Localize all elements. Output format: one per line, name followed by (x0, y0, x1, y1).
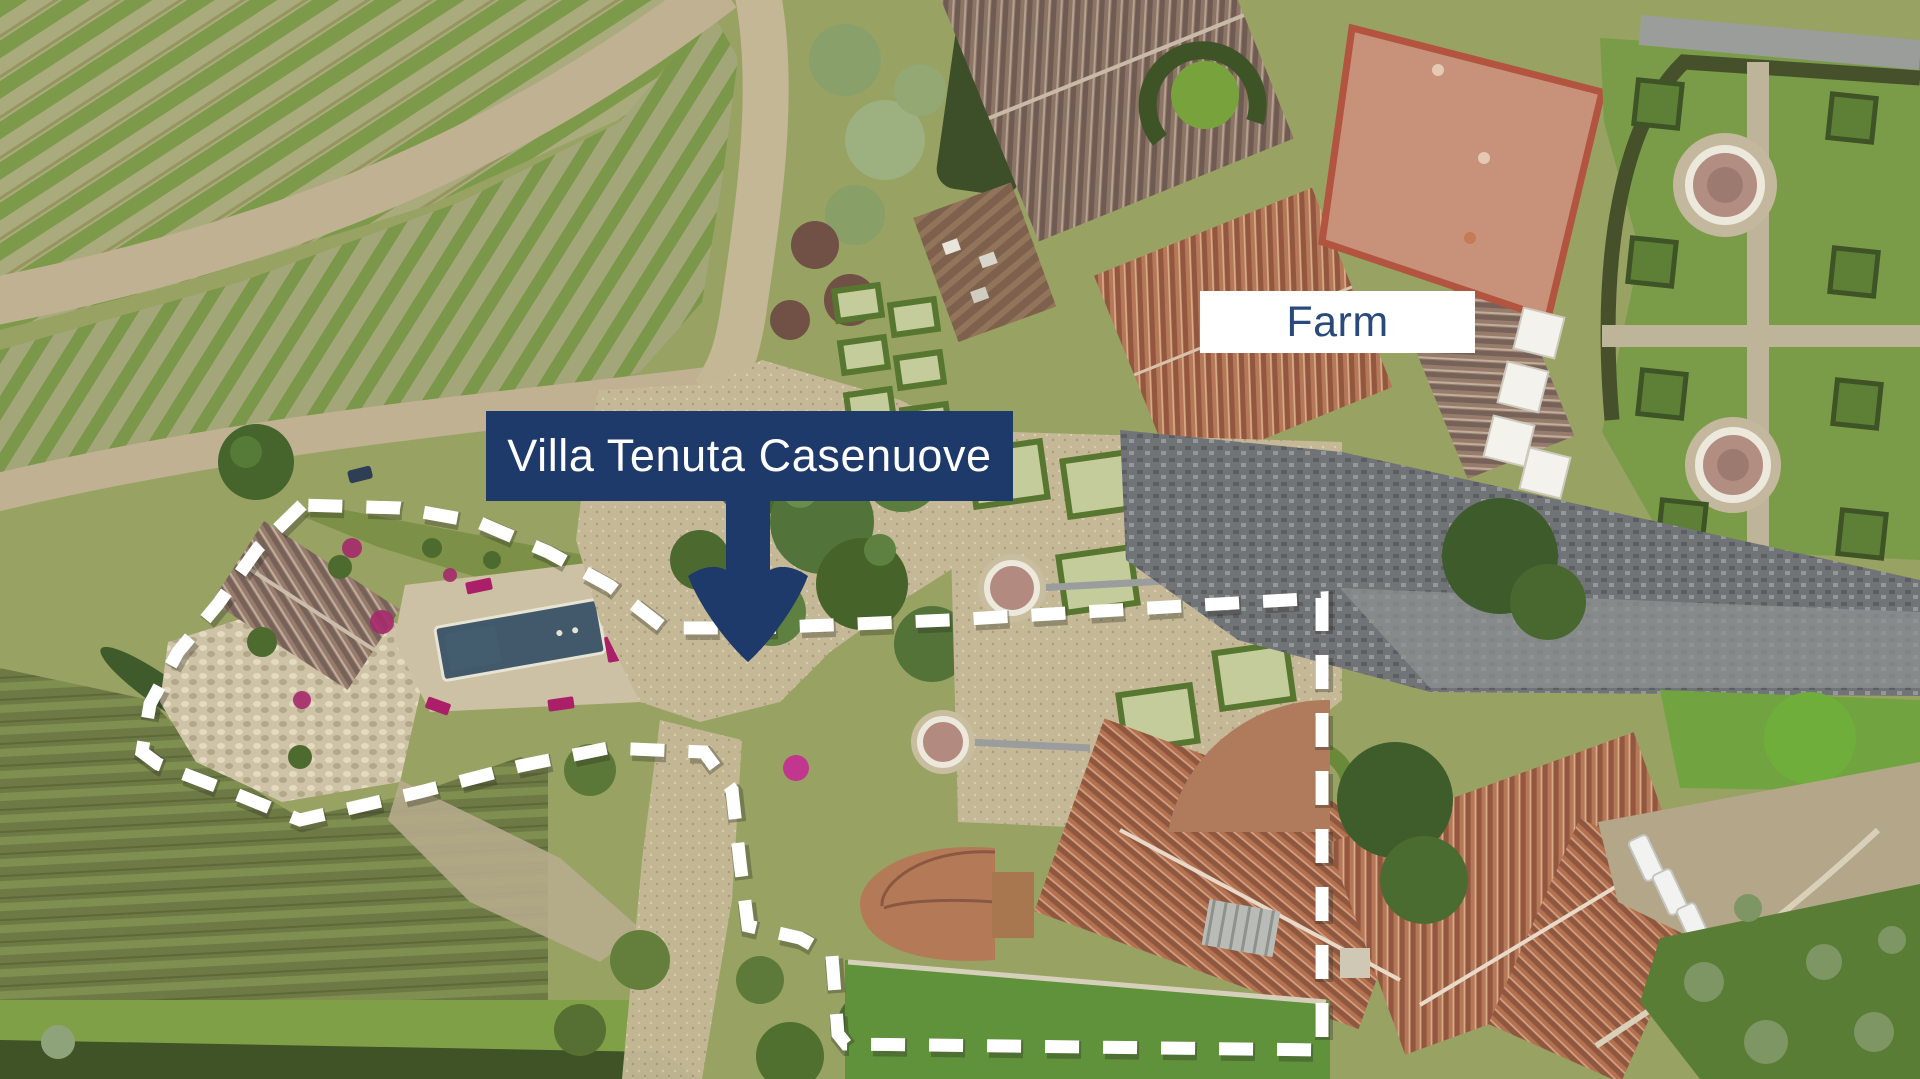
fountain-lower (1685, 417, 1781, 513)
olive-tree (41, 1025, 75, 1059)
farm-label: Farm (1200, 291, 1475, 353)
pink-table (783, 755, 809, 781)
big-tree-right-2 (1510, 564, 1586, 640)
large-tree-highlight (230, 436, 262, 468)
courtyard-tree (1171, 61, 1239, 129)
bright-tree (1764, 692, 1856, 784)
aerial-photograph (0, 0, 1920, 1079)
formal-garden (1600, 30, 1920, 560)
courtyard-fountain-lower (911, 710, 975, 774)
villa-label-text: Villa Tenuta Casenuove (507, 430, 991, 482)
villa-label: Villa Tenuta Casenuove (486, 411, 1013, 501)
fountain-upper (1673, 133, 1777, 237)
aerial-photo-stage: Villa Tenuta Casenuove Farm (0, 0, 1920, 1079)
farm-label-text: Farm (1286, 298, 1388, 347)
